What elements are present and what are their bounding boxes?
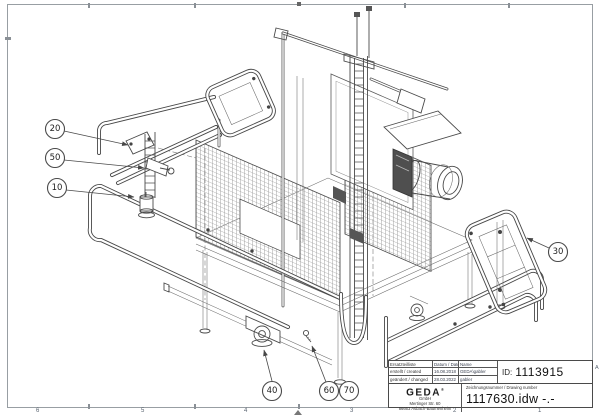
company-block: GEDA® GmbH Mertinger Str. 60 86663 Asbac… [389, 384, 462, 412]
svg-text:10: 10 [52, 183, 63, 193]
created-name: GEDA\gabler [459, 368, 498, 375]
drawing-number-block: Zeichnungsnummer / Drawing number 111763… [462, 384, 592, 412]
drawing-number: 1117630.idw -.- [466, 392, 592, 406]
svg-text:40: 40 [267, 386, 278, 396]
drawing-number-label: Zeichnungsnummer / Drawing number [466, 385, 592, 390]
svg-text:50: 50 [50, 153, 61, 163]
company-city: 86663 Asbach-Bäumenheim [389, 407, 461, 412]
created-date: 16.08.2018 [433, 368, 459, 375]
mesh-wall-left [196, 140, 340, 300]
svg-text:70: 70 [344, 386, 355, 396]
document-id: ID: 1113915 [498, 361, 592, 383]
gearbox [393, 149, 412, 197]
balloon-70[interactable]: 70 [340, 382, 359, 401]
table-header-name: Name [459, 361, 498, 368]
row-created-label: erstellt / created [389, 368, 433, 375]
drawing-sheet: 6 5 4 3 2 1 A [0, 0, 600, 418]
svg-text:20: 20 [50, 124, 61, 134]
table-header-parts-list: Ersatzteilliste [389, 361, 433, 368]
changed-date: 28.03.2022 [433, 376, 459, 383]
changed-name: gabler [459, 376, 498, 383]
id-label: ID: [502, 368, 512, 377]
left-gate [204, 68, 276, 146]
title-block-table: Ersatzteilliste erstellt / created geänd… [389, 361, 592, 384]
title-block: Ersatzteilliste erstellt / created geänd… [388, 360, 593, 408]
registered-mark: ® [441, 387, 444, 392]
svg-text:30: 30 [553, 247, 564, 257]
row-changed-label: geändert / changed [389, 376, 433, 383]
technical-drawing: 10 20 50 30 40 60 70 [0, 0, 600, 418]
svg-text:60: 60 [324, 386, 335, 396]
screw-part [303, 330, 311, 342]
table-header-date: Datum / Date [433, 361, 459, 368]
balloon-60[interactable]: 60 [312, 346, 339, 401]
balloon-20[interactable]: 20 [46, 120, 129, 146]
id-value: 1113915 [515, 365, 563, 379]
balloon-40[interactable]: 40 [263, 350, 282, 401]
